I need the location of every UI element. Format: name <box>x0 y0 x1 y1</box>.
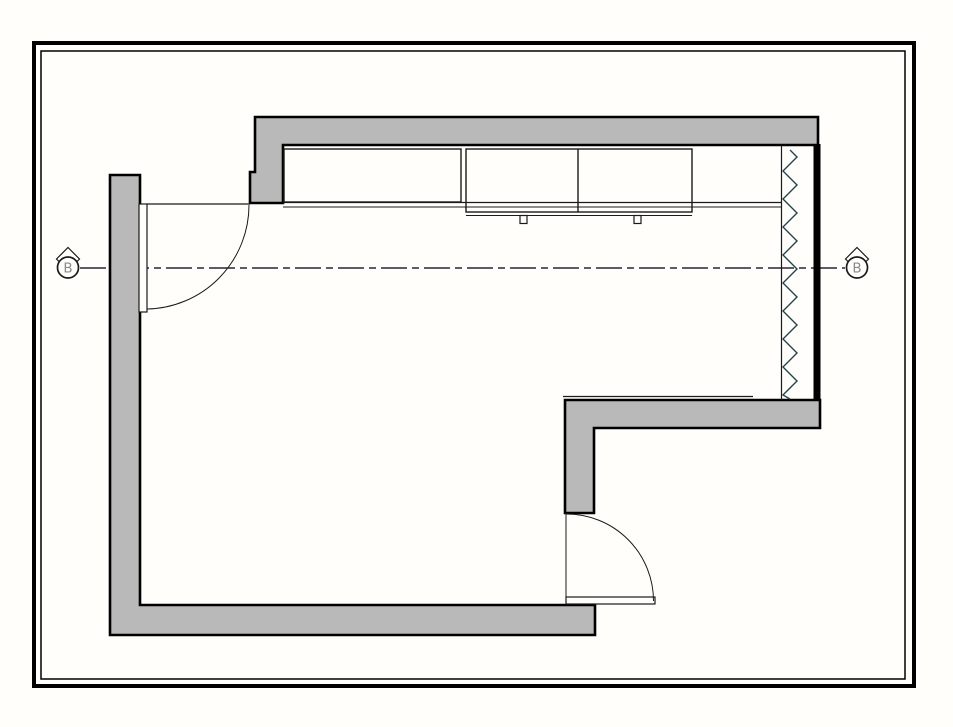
door-swing-bottom <box>567 514 654 601</box>
door-swing-left <box>147 205 249 309</box>
wall-left-bottom <box>110 175 595 635</box>
cabinet-handle-left <box>520 216 527 224</box>
cabinet-handle-right <box>634 216 641 224</box>
floor-plan-sheet: BB <box>0 0 953 727</box>
section-marker-right-label: B <box>852 261 861 277</box>
door-leaf-left <box>139 204 147 312</box>
wall-step <box>565 400 820 513</box>
insulation-zigzag <box>783 150 797 399</box>
door-leaf-bottom <box>566 597 655 604</box>
wall-top <box>250 117 818 203</box>
section-marker-left-label: B <box>63 261 72 277</box>
wall-right <box>814 144 821 402</box>
cabinet-unit-left <box>284 149 461 202</box>
floor-plan-svg: BB <box>0 0 953 727</box>
